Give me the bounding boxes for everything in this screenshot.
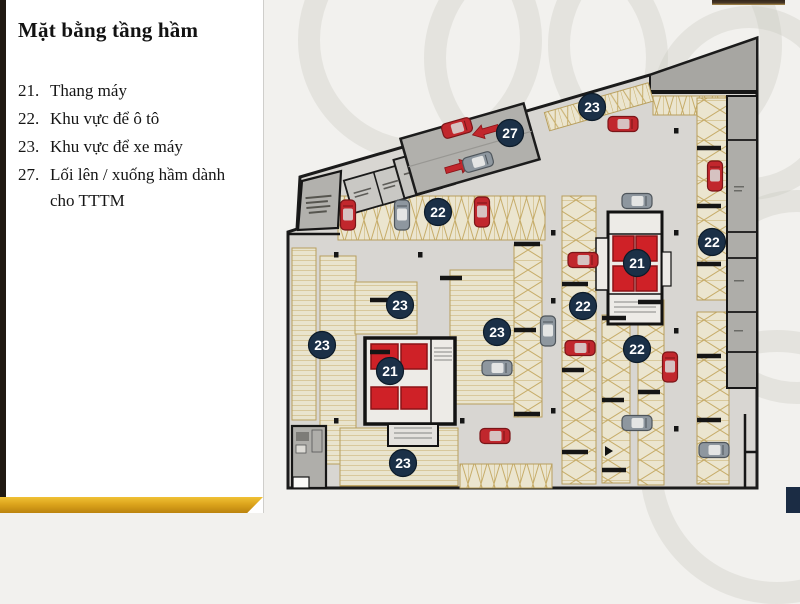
slide: { "slide": { "title": "Mặt bằng tầng hầm… (0, 0, 800, 513)
legend-label: Lối lên / xuống hầm dành cho TTTM (50, 162, 248, 214)
top-accent-strip (712, 0, 785, 5)
plan-marker-label: 22 (629, 341, 645, 357)
legend-item-27: 27. Lối lên / xuống hầm dành cho TTTM (18, 162, 254, 214)
plan-marker-label: 22 (430, 204, 446, 220)
corner-accent-block (786, 487, 800, 513)
floorplan: 272322222122232323212223 (283, 28, 767, 506)
legend-item-22: 22. Khu vực để ô tô (18, 106, 254, 132)
legend-item-21: 21. Thang máy (18, 78, 254, 104)
floorplan-svg: 272322222122232323212223 (283, 28, 767, 506)
legend-number: 22. (18, 106, 50, 132)
legend-number: 23. (18, 134, 50, 160)
plan-marker-label: 23 (392, 297, 408, 313)
technical-room (298, 171, 341, 230)
legend-item-23: 23. Khu vực để xe máy (18, 134, 254, 160)
plan-marker-label: 23 (395, 455, 411, 471)
plan-marker-label: 22 (704, 234, 720, 250)
plan-marker-label: 23 (314, 337, 330, 353)
gold-accent-bar (0, 497, 263, 513)
legend-list: 21. Thang máy 22. Khu vực để ô tô 23. Kh… (18, 78, 254, 216)
upper-triangle-area (650, 38, 757, 92)
plan-marker-label: 27 (502, 125, 518, 141)
left-accent-bar (0, 0, 6, 513)
legend-label: Khu vực để xe máy (50, 134, 248, 160)
legend-number: 21. (18, 78, 50, 104)
legend-number: 27. (18, 162, 50, 214)
plan-marker-label: 21 (629, 255, 645, 271)
plan-marker-label: 21 (382, 363, 398, 379)
legend-label: Khu vực để ô tô (50, 106, 248, 132)
legend-panel (6, 0, 264, 513)
plan-marker-label: 23 (584, 99, 600, 115)
plan-marker-label: 22 (575, 298, 591, 314)
equipment-room (292, 426, 326, 488)
plan-marker-label: 23 (489, 324, 505, 340)
page-title: Mặt bằng tầng hầm (18, 18, 248, 43)
legend-label: Thang máy (50, 78, 248, 104)
